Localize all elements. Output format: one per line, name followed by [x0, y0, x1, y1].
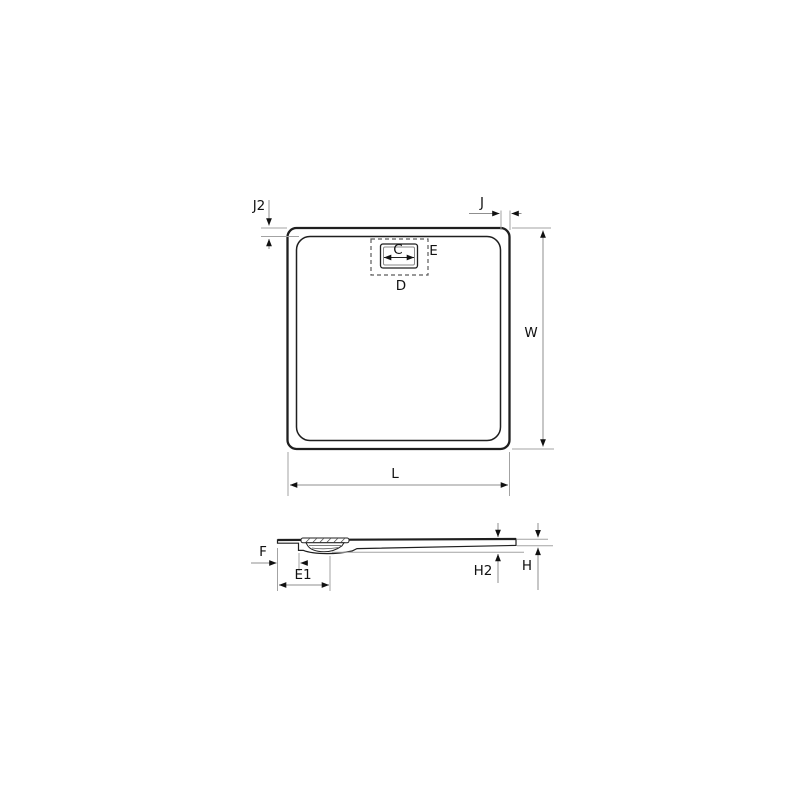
dimension-w: W: [512, 228, 554, 449]
label-c: C: [393, 242, 402, 258]
label-f: F: [259, 544, 267, 560]
technical-drawing-page: C E D J2 J W: [0, 0, 800, 800]
dimension-h2: H2: [474, 523, 498, 583]
label-d: D: [396, 278, 406, 294]
side-view: F E1 H2 H: [251, 523, 553, 591]
label-h2: H2: [474, 563, 493, 579]
label-h: H: [522, 558, 532, 574]
shower-tray-dimension-diagram: C E D J2 J W: [0, 0, 800, 800]
label-e1: E1: [294, 567, 311, 583]
dimension-e1: E1: [279, 556, 330, 591]
top-view: C E D J2 J W: [252, 195, 554, 496]
dimension-h: H: [517, 523, 553, 590]
label-w: W: [524, 325, 537, 341]
label-l: L: [391, 466, 399, 482]
label-j2: J2: [252, 198, 266, 214]
dimension-l: L: [288, 452, 510, 496]
label-j: J: [479, 195, 484, 211]
label-e: E: [429, 243, 438, 259]
dimension-j: J: [469, 195, 522, 230]
